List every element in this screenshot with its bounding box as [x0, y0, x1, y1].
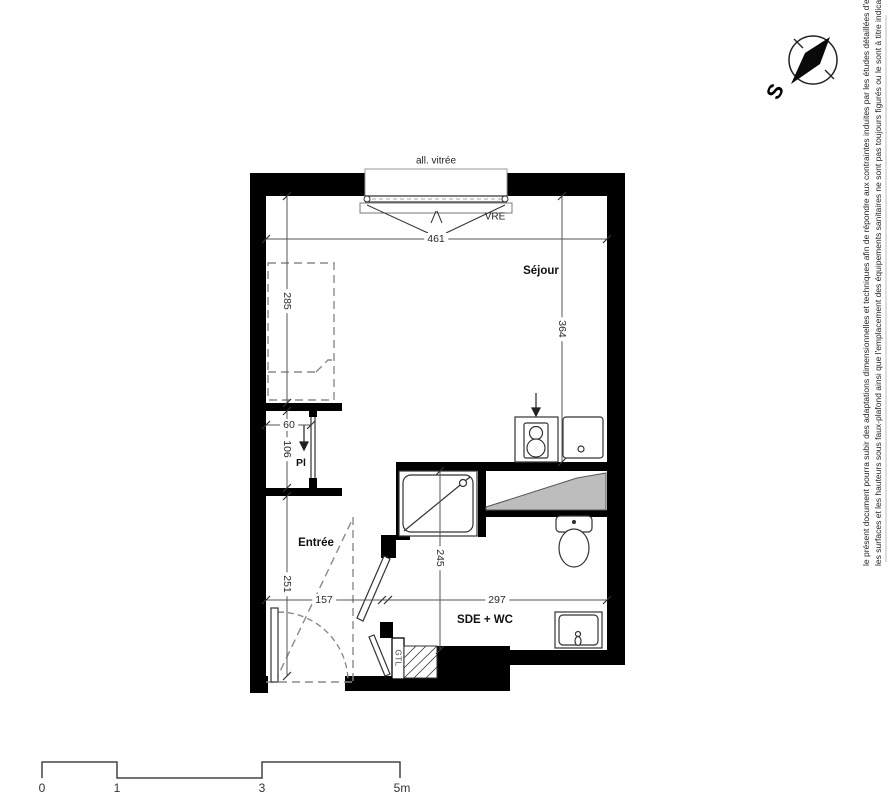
washbasin-faucet	[575, 637, 581, 646]
dim-157: 157	[312, 594, 336, 606]
toilet-button	[573, 521, 576, 524]
wall-bed-nook	[266, 403, 342, 411]
wall-right	[607, 173, 625, 665]
room-label-bathroom: SDE + WC	[457, 614, 513, 626]
window-group	[360, 169, 512, 233]
wall-bathroom-bottom	[410, 650, 625, 665]
compass-group	[789, 36, 837, 84]
scale-tick-0: 0	[39, 781, 46, 795]
dim-285: 285	[281, 289, 293, 313]
window-type-label: VRE	[485, 212, 506, 223]
arrows-group	[300, 393, 540, 450]
scale-tick-1: 1	[114, 781, 121, 795]
room-label-sejour: Séjour	[523, 265, 559, 277]
cooktop-burner-small	[530, 427, 543, 440]
scale-bar	[42, 762, 400, 778]
cooktop-burner-large	[527, 439, 545, 457]
closet-arrow-head	[300, 442, 308, 450]
dim-251: 251	[281, 572, 293, 596]
room-label-entree: Entrée	[298, 537, 334, 549]
disclaimer-line-2: les surfaces et les hauteurs sous faux-p…	[872, 14, 884, 566]
dim-364: 364	[556, 317, 568, 341]
wall-top-right	[507, 173, 622, 196]
wall-left	[250, 173, 266, 676]
window-hinge-left	[364, 196, 370, 202]
gtl-door-leaf	[369, 635, 390, 676]
disclaimer-text: le présent document pourra subir des ada…	[860, 14, 884, 566]
closet-door-block-top	[309, 405, 317, 417]
wall-door-jamb	[381, 535, 396, 558]
toilet-bowl	[559, 529, 589, 567]
entrance-door-swing-arc	[278, 612, 348, 682]
bathroom-door-leaf	[357, 556, 390, 621]
floor-plan-page: all. vitrée VRE Séjour Entrée Pl SDE + W…	[0, 0, 889, 800]
window-hinge-right	[502, 196, 508, 202]
wall-left-stub	[250, 676, 268, 693]
wall-gtl-stub	[380, 622, 393, 638]
scale-tick-3: 3	[259, 781, 266, 795]
disclaimer-line-1: le présent document pourra subir des ada…	[860, 14, 872, 566]
wall-top-left	[250, 173, 365, 196]
kitchen-arrow-head	[532, 408, 540, 416]
kitchen-sink-drain	[578, 446, 584, 452]
dim-461: 461	[424, 233, 448, 245]
dim-60: 60	[280, 419, 298, 431]
floor-plan-linework	[0, 0, 889, 800]
dim-297: 297	[485, 594, 509, 606]
soffit-gray-zone	[486, 473, 606, 510]
dim-106: 106	[281, 437, 293, 461]
shower-drain	[460, 480, 467, 487]
window-opening	[365, 169, 507, 196]
dashed-group	[266, 263, 353, 682]
scale-tick-5m: 5m	[394, 781, 411, 795]
washbasin-faucet-dot	[576, 632, 581, 637]
room-label-closet: Pl	[296, 457, 306, 469]
wall-shower-stub	[478, 471, 486, 537]
compass-needle	[791, 37, 830, 84]
window-label: all. vitrée	[416, 156, 456, 167]
entrance-door-leaf	[271, 608, 278, 682]
dim-245: 245	[434, 546, 446, 570]
room-label-gtl: GTL	[394, 649, 403, 666]
closet-door-block-bottom	[309, 478, 317, 490]
bed-outline	[268, 263, 334, 400]
bed-blanket-fold	[316, 360, 334, 372]
wall-kitchen-bath	[396, 462, 607, 471]
wall-closet-bottom	[266, 488, 342, 496]
